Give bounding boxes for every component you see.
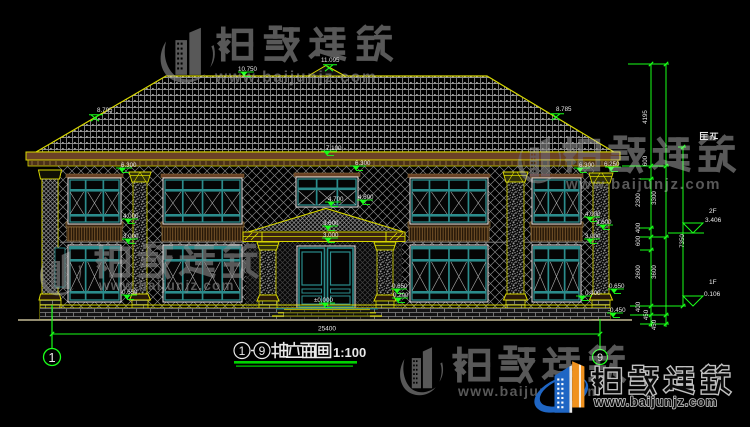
svg-text:www.baijunjz.com: www.baijunjz.com bbox=[593, 395, 718, 409]
svg-text:600: 600 bbox=[642, 155, 649, 166]
svg-text:2F: 2F bbox=[709, 208, 717, 215]
svg-text:450: 450 bbox=[651, 319, 658, 330]
svg-text:www.baijunjz.com: www.baijunjz.com bbox=[214, 69, 378, 86]
svg-text:1: 1 bbox=[239, 344, 246, 358]
svg-text:2600: 2600 bbox=[635, 265, 642, 279]
svg-text:7350: 7350 bbox=[679, 234, 686, 248]
svg-text:9: 9 bbox=[259, 344, 266, 358]
svg-text:1: 1 bbox=[48, 350, 55, 365]
svg-text:4195: 4195 bbox=[642, 110, 649, 124]
svg-text:450: 450 bbox=[643, 309, 650, 320]
svg-text:2300: 2300 bbox=[635, 193, 642, 207]
svg-text:400: 400 bbox=[635, 222, 642, 233]
svg-text:1:100: 1:100 bbox=[333, 345, 366, 360]
svg-text:8.785: 8.785 bbox=[556, 106, 572, 113]
svg-text:3.406: 3.406 bbox=[705, 217, 722, 224]
svg-text:8.795: 8.795 bbox=[97, 107, 113, 114]
svg-text:3600: 3600 bbox=[651, 265, 658, 279]
svg-text:1F: 1F bbox=[709, 279, 717, 286]
svg-text:www.baijunjz.com: www.baijunjz.com bbox=[98, 278, 235, 293]
svg-text:400: 400 bbox=[635, 301, 642, 312]
svg-text:600: 600 bbox=[635, 235, 642, 246]
svg-text:0.106: 0.106 bbox=[704, 291, 721, 298]
svg-text:25400: 25400 bbox=[318, 326, 336, 333]
svg-text:www.baijunjz.com: www.baijunjz.com bbox=[565, 176, 721, 193]
